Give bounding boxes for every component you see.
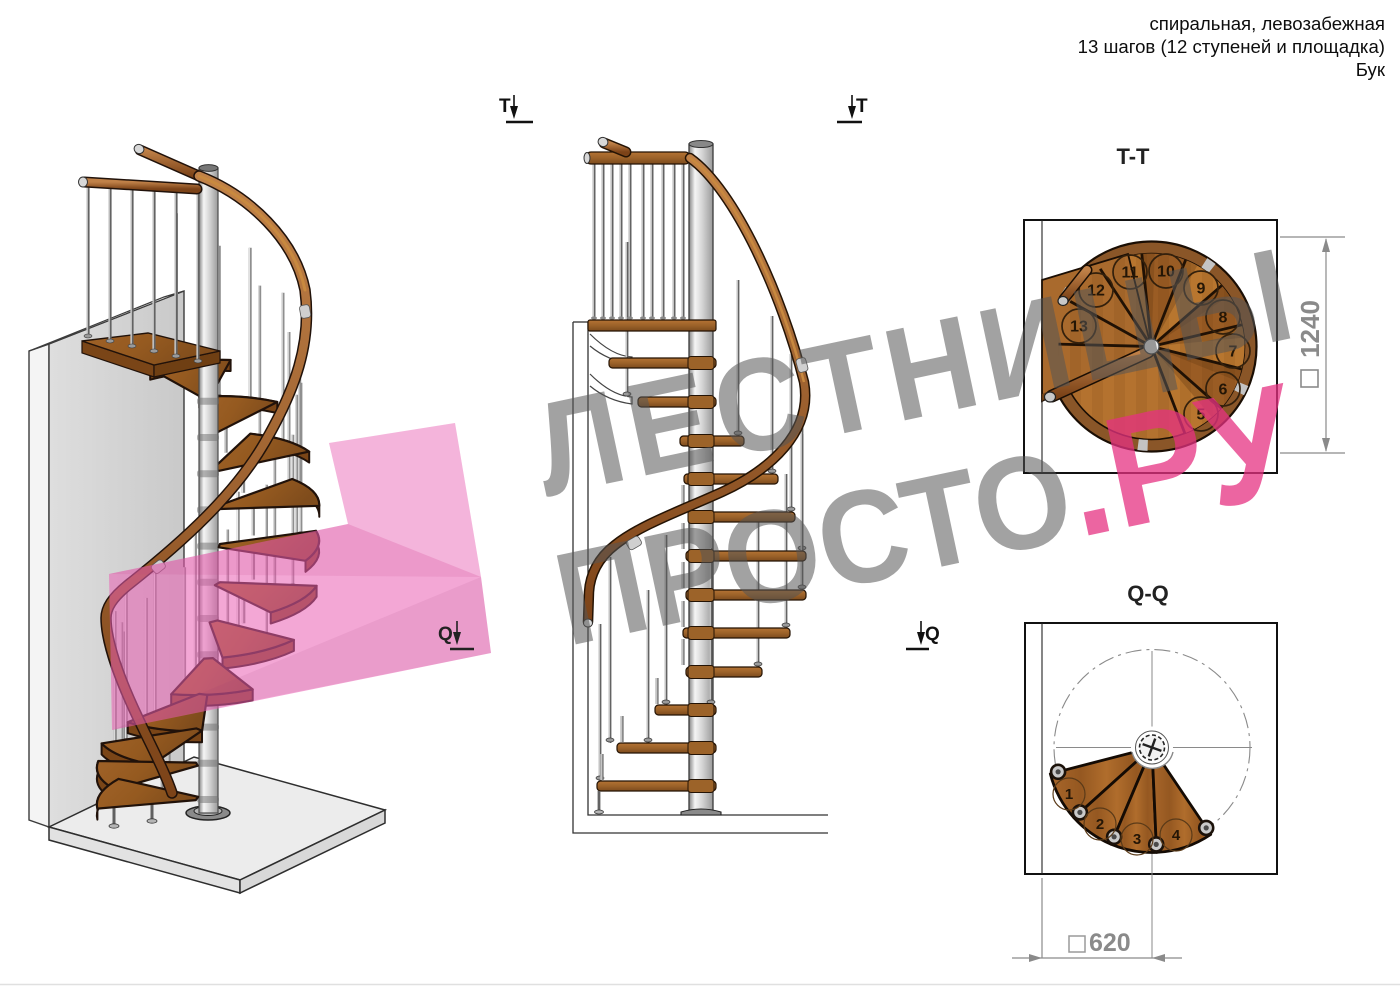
svg-text:4: 4 — [1172, 827, 1181, 844]
svg-text:Q-Q: Q-Q — [1127, 581, 1169, 606]
svg-text:T-T: T-T — [1117, 144, 1151, 169]
svg-text:3: 3 — [1133, 831, 1141, 848]
svg-text:Q: Q — [438, 624, 453, 645]
svg-text:620: 620 — [1089, 929, 1131, 957]
svg-text:T: T — [856, 96, 868, 117]
svg-text:T: T — [499, 96, 511, 117]
svg-text:Q: Q — [925, 624, 940, 645]
svg-text:1: 1 — [1065, 786, 1073, 803]
svg-text:2: 2 — [1096, 816, 1104, 833]
